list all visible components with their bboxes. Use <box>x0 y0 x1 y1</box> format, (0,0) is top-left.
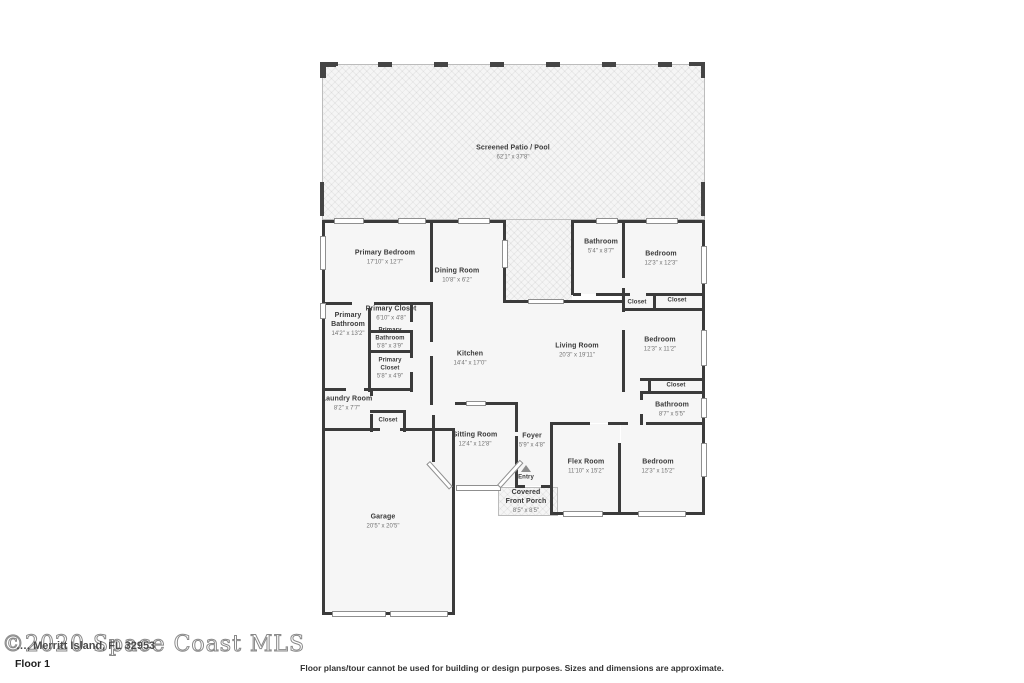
floor-plan-canvas: Screened Patio / Pool62'1" x 37'8"Primar… <box>0 0 1024 683</box>
wall <box>430 220 433 282</box>
wall <box>618 443 621 515</box>
wall <box>646 422 702 425</box>
window <box>701 443 707 477</box>
wall <box>515 485 525 488</box>
window <box>390 611 448 617</box>
wall <box>622 330 625 378</box>
room-floor <box>621 294 703 513</box>
patio-post <box>320 62 324 78</box>
wall <box>322 220 325 615</box>
window <box>638 511 686 517</box>
disclaimer-text: Floor plans/tour cannot be used for buil… <box>0 663 1024 673</box>
wall <box>653 295 656 309</box>
patio-post <box>701 182 705 216</box>
window <box>466 401 486 406</box>
window <box>320 236 326 270</box>
wall <box>374 302 433 305</box>
wall <box>573 220 705 223</box>
window <box>456 485 501 491</box>
wall <box>622 308 702 311</box>
window <box>563 511 603 517</box>
wall <box>368 350 413 353</box>
wall <box>640 391 643 400</box>
wall <box>370 388 373 396</box>
wall <box>550 422 553 515</box>
wall <box>622 378 625 392</box>
room-floor <box>573 222 703 294</box>
window <box>528 299 564 304</box>
address-watermark: …, Merritt Island, FL 32953 <box>16 640 155 652</box>
wall <box>403 410 406 432</box>
wall <box>370 410 405 413</box>
window <box>596 218 618 224</box>
window <box>701 246 707 284</box>
wall <box>322 388 346 391</box>
room-floor <box>552 424 620 513</box>
window <box>701 330 707 366</box>
wall <box>430 302 433 342</box>
entry-arrow-icon <box>521 465 531 472</box>
window <box>334 218 364 224</box>
window <box>701 398 707 418</box>
wall <box>640 391 702 394</box>
window <box>398 218 426 224</box>
room-floor <box>505 302 623 423</box>
wall <box>400 428 455 431</box>
wall <box>640 414 643 425</box>
wall <box>370 414 373 432</box>
wall <box>541 485 552 488</box>
wall <box>410 302 413 322</box>
patio-post <box>701 62 705 78</box>
wall <box>410 330 413 358</box>
window <box>332 611 386 617</box>
window <box>646 218 678 224</box>
wall <box>573 293 581 296</box>
screened-patio-area <box>322 64 705 220</box>
patio-notch-area <box>505 220 572 302</box>
wall <box>432 415 435 462</box>
window <box>502 240 508 268</box>
wall <box>622 295 625 312</box>
wall <box>430 356 433 405</box>
wall <box>503 300 625 303</box>
front-porch-area <box>498 487 558 516</box>
wall <box>622 220 625 278</box>
wall <box>608 422 628 425</box>
patio-post <box>320 182 324 216</box>
wall <box>452 430 455 615</box>
wall <box>515 402 518 432</box>
window <box>458 218 490 224</box>
window <box>320 303 326 319</box>
wall <box>553 422 590 425</box>
floor-plan-page: Screened Patio / Pool62'1" x 37'8"Primar… <box>0 0 1024 683</box>
wall <box>322 302 352 305</box>
wall <box>368 330 413 333</box>
patio-post-strip <box>322 62 705 67</box>
wall <box>571 220 574 295</box>
